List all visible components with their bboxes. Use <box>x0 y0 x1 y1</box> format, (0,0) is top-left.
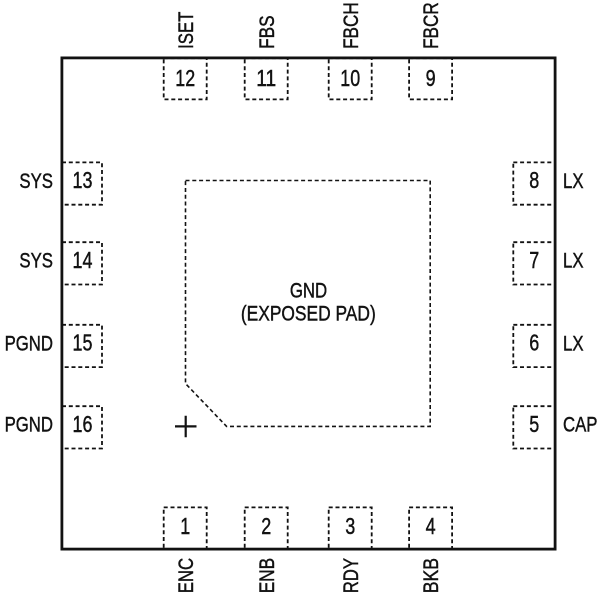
svg-text:12: 12 <box>175 65 195 91</box>
svg-text:11: 11 <box>256 65 276 91</box>
svg-text:8: 8 <box>529 167 539 193</box>
svg-text:FBCH: FBCH <box>339 2 363 49</box>
svg-text:6: 6 <box>529 330 539 356</box>
svg-text:2: 2 <box>261 513 271 539</box>
svg-text:13: 13 <box>73 167 93 193</box>
svg-text:CAP: CAP <box>563 413 598 437</box>
svg-text:LX: LX <box>563 249 584 273</box>
svg-text:SYS: SYS <box>19 169 53 193</box>
svg-text:FBCR: FBCR <box>419 2 443 49</box>
svg-text:PGND: PGND <box>5 331 53 355</box>
svg-text:PGND: PGND <box>5 413 53 437</box>
svg-text:ENB: ENB <box>255 558 279 593</box>
svg-text:1: 1 <box>180 513 190 539</box>
svg-text:4: 4 <box>426 513 436 539</box>
svg-text:9: 9 <box>426 65 436 91</box>
svg-text:ENC: ENC <box>174 558 198 593</box>
svg-text:ISET: ISET <box>174 12 198 49</box>
svg-text:SYS: SYS <box>19 249 53 273</box>
svg-text:15: 15 <box>73 330 93 356</box>
svg-text:LX: LX <box>563 169 584 193</box>
svg-text:16: 16 <box>73 411 93 437</box>
svg-text:LX: LX <box>563 331 584 355</box>
svg-text:(EXPOSED PAD): (EXPOSED PAD) <box>241 302 376 326</box>
svg-text:14: 14 <box>73 247 93 273</box>
svg-text:FBS: FBS <box>255 15 279 49</box>
svg-text:BKB: BKB <box>419 558 443 593</box>
svg-text:GND: GND <box>290 279 327 303</box>
svg-text:3: 3 <box>345 513 355 539</box>
svg-text:5: 5 <box>529 411 539 437</box>
svg-text:7: 7 <box>529 247 539 273</box>
svg-text:10: 10 <box>340 65 360 91</box>
svg-text:RDY: RDY <box>339 558 363 593</box>
